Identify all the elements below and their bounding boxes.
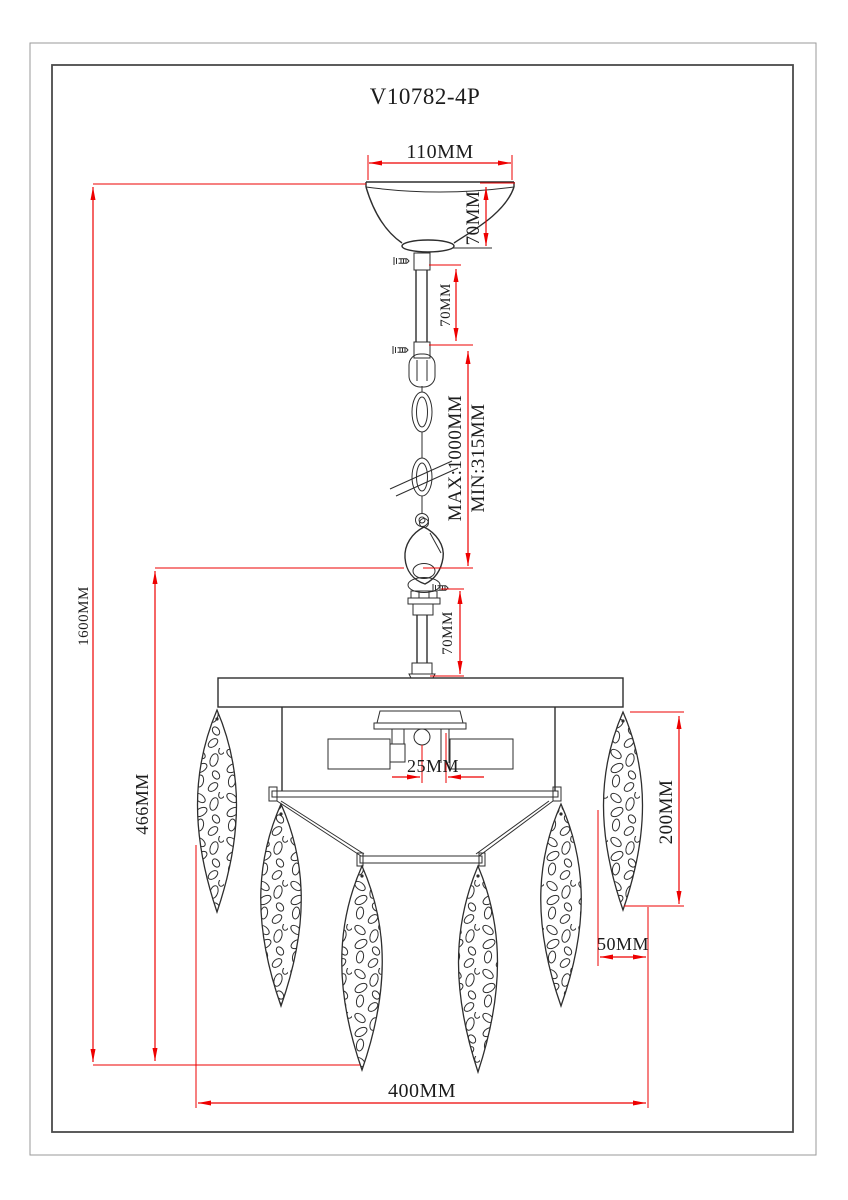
top-plate — [218, 678, 623, 707]
leaf-3 — [342, 866, 383, 1070]
mounting-screw-icon — [394, 257, 409, 265]
drawing-frame-outer — [30, 43, 816, 1155]
swivel-stem — [408, 578, 440, 679]
dim-canopy-height: 70MM — [463, 187, 486, 246]
dim-overall-height: 1600MM — [76, 187, 93, 1062]
extension-lines — [93, 155, 684, 1108]
inner-frame — [282, 707, 555, 791]
mounting-screw-icon — [393, 346, 408, 354]
body-width-label: 400MM — [388, 1080, 456, 1102]
middle-band — [269, 787, 561, 856]
dim-chain-adjustable: MAX:1000MM MIN:315MM — [445, 351, 489, 566]
leaf-2 — [261, 804, 302, 1006]
dim-canopy-width: 110MM — [369, 141, 511, 163]
dim-lower-rod: 70MM — [440, 591, 460, 674]
dim-body-width: 400MM — [198, 1080, 646, 1103]
upper-rod-length-label: 70MM — [438, 283, 454, 327]
leaf-5 — [541, 804, 582, 1006]
lower-ring — [357, 853, 485, 866]
chain-max-label: MAX:1000MM — [445, 395, 466, 521]
overall-height-label: 1600MM — [76, 586, 92, 646]
right-lamp-socket — [450, 739, 513, 769]
hook — [405, 519, 443, 585]
socket-offset-label: 25MM — [407, 756, 459, 776]
leaf-1 — [198, 710, 237, 912]
lower-rod-length-label: 70MM — [440, 611, 456, 655]
ceiling-canopy — [366, 182, 514, 252]
canopy-height-label: 70MM — [463, 191, 484, 246]
leaf-width-label: 50MM — [597, 934, 649, 954]
left-lamp-socket — [328, 739, 390, 769]
leaf-4 — [459, 866, 498, 1072]
technical-drawing-page: V10782-4P — [0, 0, 848, 1200]
dim-leaf-length: 200MM — [656, 716, 679, 904]
dim-body-height: 466MM — [132, 571, 155, 1061]
leaf-length-label: 200MM — [656, 780, 677, 845]
model-number-title: V10782-4P — [370, 84, 481, 109]
leaf-6 — [604, 712, 643, 910]
dim-upper-rod: 70MM — [438, 269, 456, 341]
chain-min-label: MIN:315MM — [468, 403, 489, 512]
dim-socket-offset: 25MM — [392, 756, 484, 777]
mounting-screw-icon — [433, 584, 448, 592]
dim-leaf-width: 50MM — [597, 934, 649, 957]
body-height-label: 466MM — [132, 773, 152, 835]
canopy-width-label: 110MM — [406, 141, 473, 163]
chandelier-dimension-drawing: V10782-4P — [0, 0, 848, 1200]
upper-rod — [409, 253, 435, 387]
